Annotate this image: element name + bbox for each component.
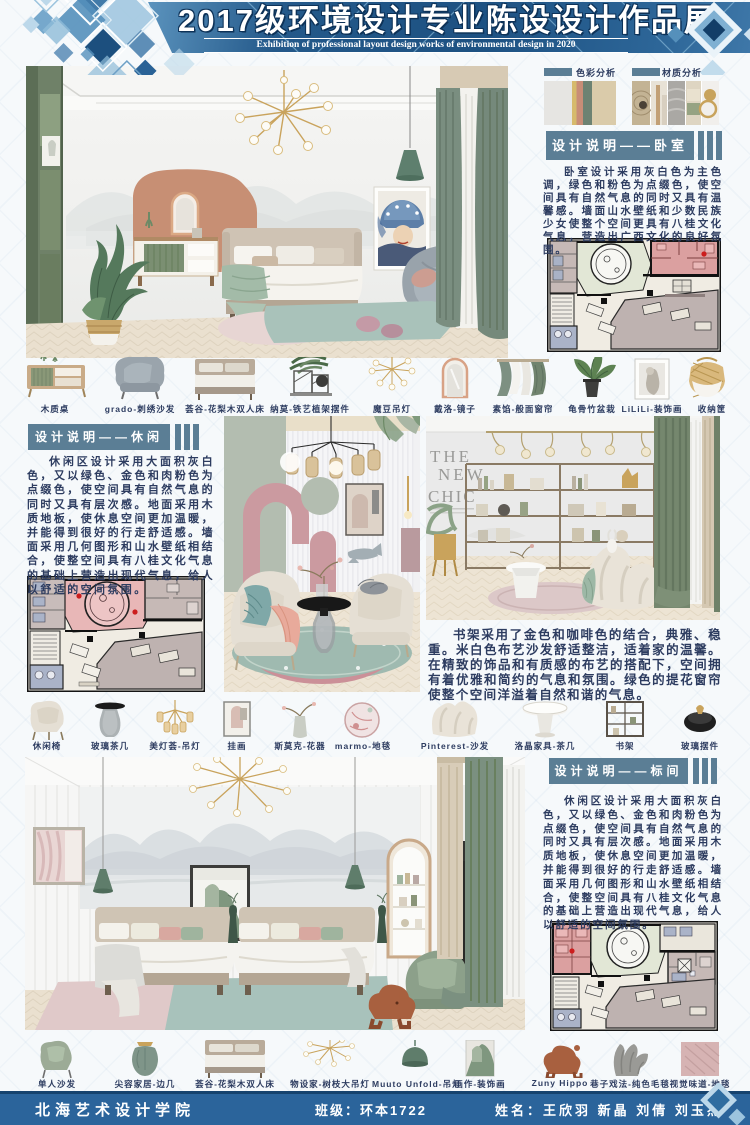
svg-text:THE: THE <box>430 447 472 466</box>
